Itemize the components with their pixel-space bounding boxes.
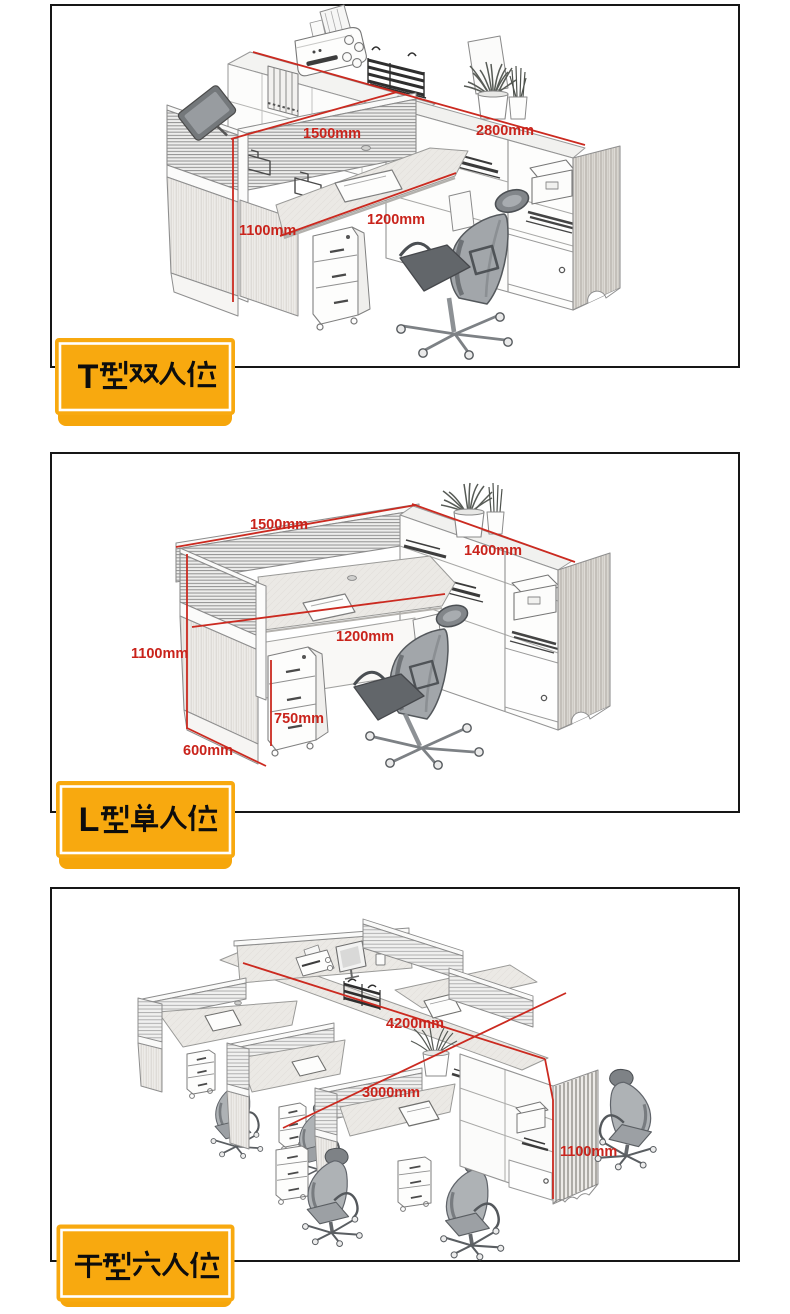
svg-text:4200mm: 4200mm — [386, 1016, 444, 1032]
svg-text:750mm: 750mm — [274, 711, 324, 727]
svg-text:1500mm: 1500mm — [250, 517, 308, 533]
svg-text:1500mm: 1500mm — [303, 126, 361, 142]
svg-text:2800mm: 2800mm — [476, 123, 534, 139]
svg-text:1400mm: 1400mm — [464, 543, 522, 559]
svg-text:1100mm: 1100mm — [560, 1144, 617, 1160]
svg-text:L: L — [79, 801, 100, 839]
svg-text:1100mm: 1100mm — [239, 223, 296, 239]
svg-text:T: T — [78, 358, 99, 396]
svg-text:1200mm: 1200mm — [367, 212, 425, 228]
svg-text:3000mm: 3000mm — [362, 1085, 420, 1101]
svg-text:1200mm: 1200mm — [336, 629, 394, 645]
svg-text:1100mm: 1100mm — [131, 646, 188, 662]
svg-text:600mm: 600mm — [183, 743, 233, 759]
